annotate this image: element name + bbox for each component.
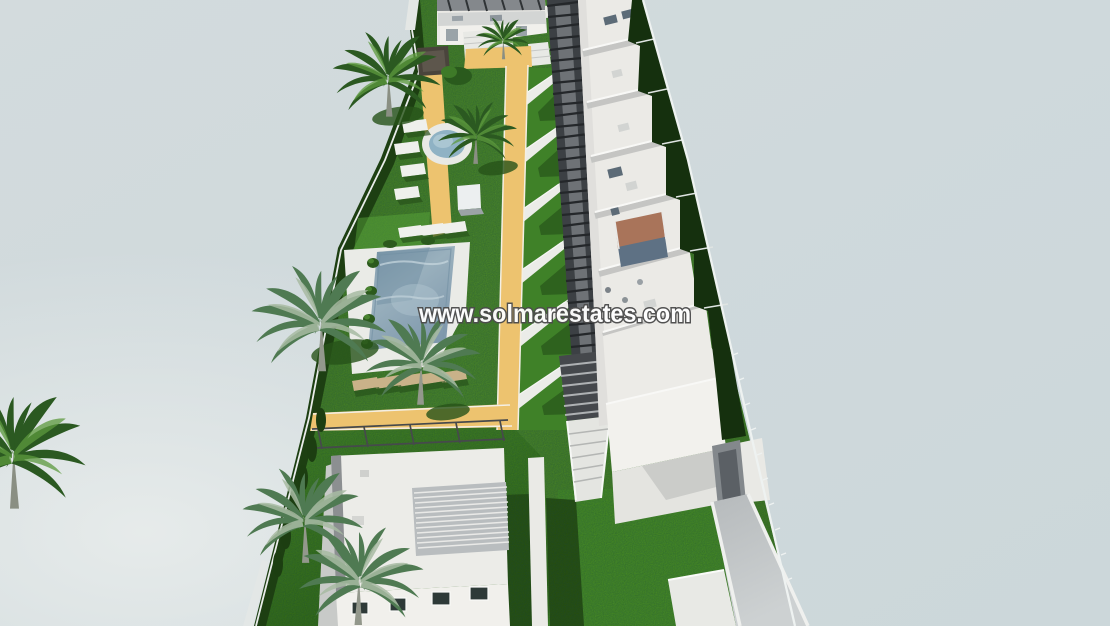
svg-text:www.solmarestates.com: www.solmarestates.com (418, 300, 691, 328)
